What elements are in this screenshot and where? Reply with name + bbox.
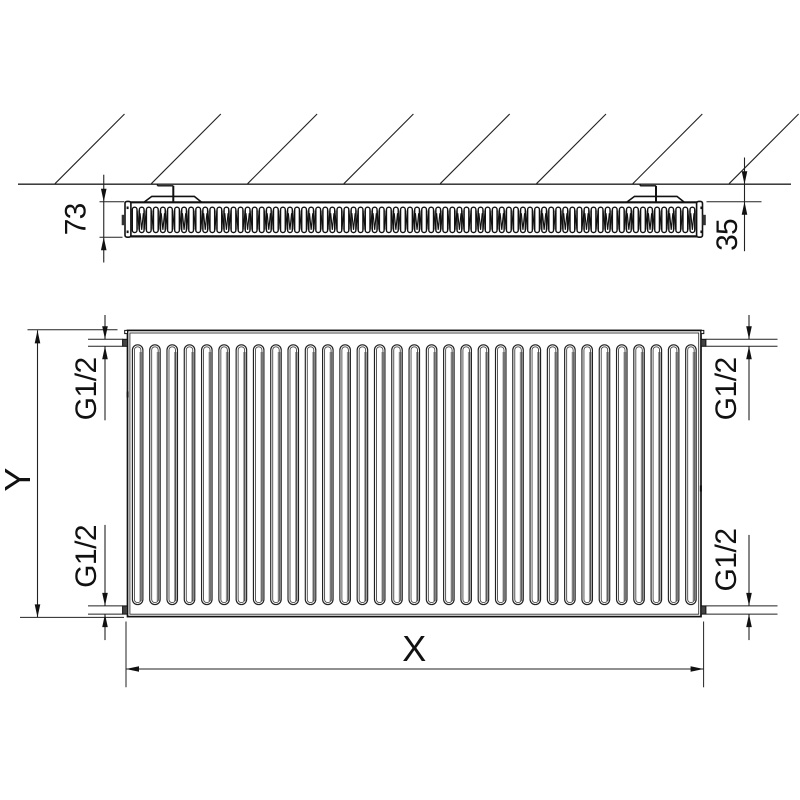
svg-text:G1/2: G1/2 xyxy=(70,357,103,420)
svg-text:G1/2: G1/2 xyxy=(710,357,743,420)
svg-text:Y: Y xyxy=(0,468,38,492)
svg-text:X: X xyxy=(402,628,426,669)
svg-text:G1/2: G1/2 xyxy=(710,528,743,591)
svg-text:73: 73 xyxy=(59,203,92,235)
svg-text:G1/2: G1/2 xyxy=(70,525,103,588)
svg-text:35: 35 xyxy=(711,219,744,251)
